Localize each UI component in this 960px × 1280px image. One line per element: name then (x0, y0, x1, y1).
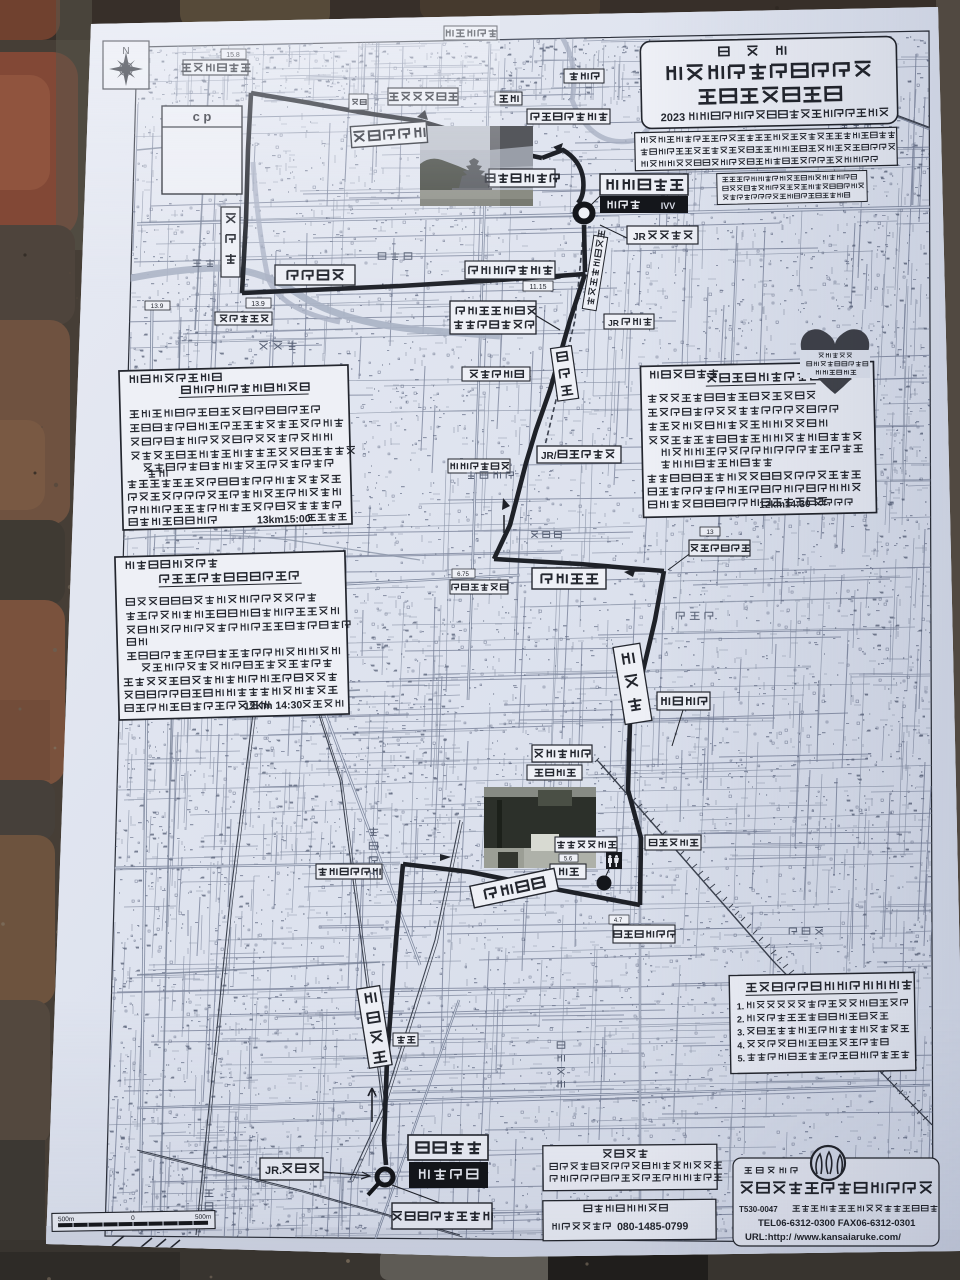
svg-text:13km15:00: 13km15:00 (257, 513, 311, 526)
svg-text:11.15: 11.15 (530, 284, 547, 291)
svg-text:5.6: 5.6 (564, 857, 573, 863)
svg-text:6.75: 6.75 (457, 572, 469, 578)
svg-text:4.7: 4.7 (614, 918, 623, 924)
svg-text:13.9: 13.9 (151, 303, 164, 310)
svg-text:JR/: JR/ (541, 451, 557, 462)
svg-text:13.9: 13.9 (251, 301, 265, 308)
svg-text:JR: JR (608, 318, 619, 328)
svg-text:12Km 14:30: 12Km 14:30 (244, 699, 303, 713)
